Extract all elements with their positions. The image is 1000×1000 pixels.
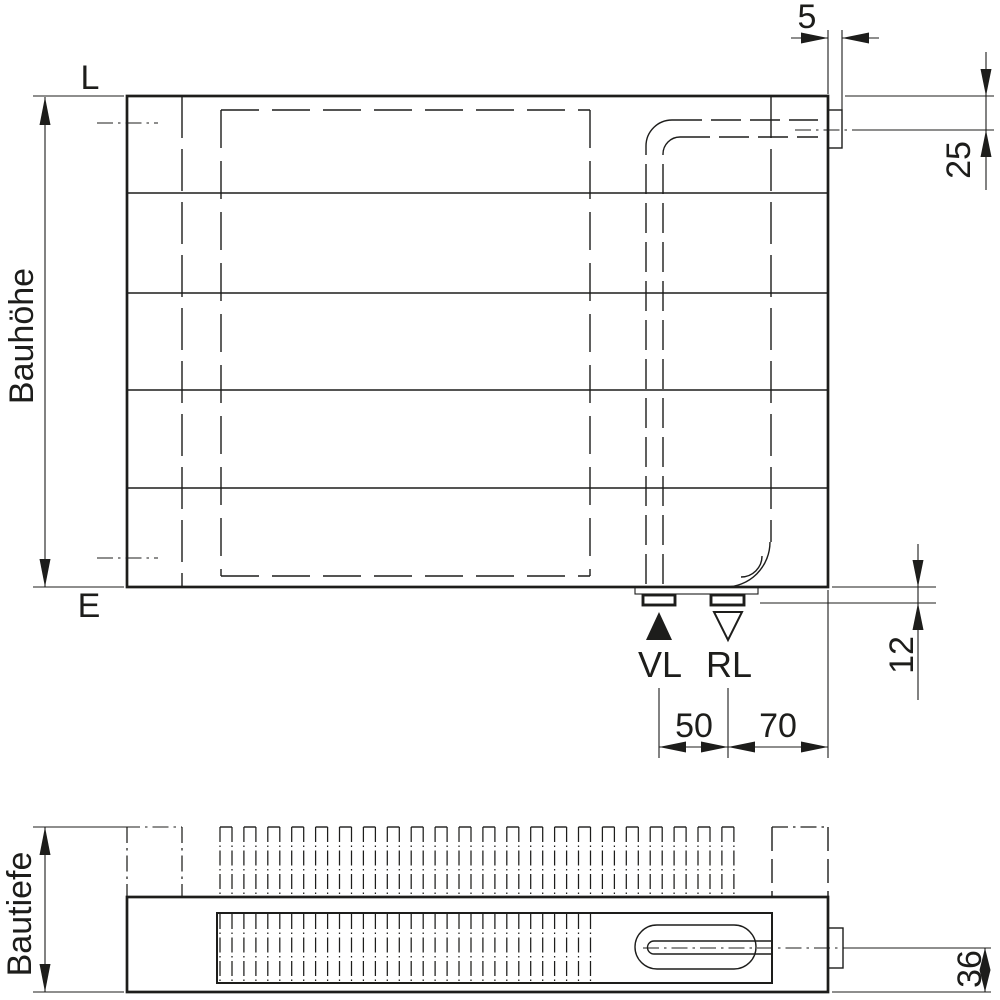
arrowhead-down-icon [40,559,51,587]
dim-pipe-center: 36 [832,948,991,992]
radiator-body [97,96,828,587]
bottom-connections: VL RL [635,587,758,685]
dim-valve-offset-value: 25 [940,141,978,179]
inner-fin-lines [220,914,591,982]
dim-stub-height: 12 [760,544,936,700]
dim-tab-width-value: 5 [798,0,817,36]
label-supply: VL [638,644,682,685]
arrowhead-down-icon [913,560,924,587]
dim-tab-width: 5 [791,0,879,110]
dim-return-to-edge-value: 70 [759,707,797,745]
valve-tab [795,110,858,148]
arrowhead-up-icon [40,827,51,855]
valve-tab-outline [828,110,842,148]
dim-stub-height-value: 12 [883,636,921,674]
arrowhead-down-icon [981,69,992,96]
return-bend-pipe [725,542,770,587]
dim-bauhoehe: Bauhöhe [3,96,124,587]
arrowhead-up-icon [40,97,51,125]
front-view: Bauhöhe L E [3,0,994,758]
label-return: RL [706,644,752,685]
arrowhead-right-icon [801,742,828,753]
supply-stub [643,595,675,605]
radiator-dimension-drawing: Bauhöhe L E [0,0,1000,1000]
dim-valve-offset: 25 [845,52,994,190]
pipe-boss-outline [635,925,756,969]
dim-pipe-center-value: 36 [951,950,989,988]
pipe-bend [725,542,770,587]
radiator-outline [127,96,828,587]
dim-height-label: Bauhöhe [3,268,41,404]
pipe-bend [663,137,680,154]
arrowhead-up-icon [913,603,924,630]
supply-riser-pipe [646,120,818,584]
dim-supply-to-return-value: 50 [675,707,713,745]
arrowhead-up-icon [981,130,992,157]
convector-fins [220,827,734,897]
dim-bautiefe: Bautiefe [1,827,182,992]
supply-flow-arrow-icon [646,612,672,640]
technical-drawing: Bauhöhe L E [0,0,1000,1000]
pipe-bend [741,556,762,577]
arrowhead-left-icon [842,33,869,44]
arrowhead-left-icon [728,742,755,753]
arrowhead-down-icon [40,964,51,992]
label-top-edge: L [81,59,100,97]
top-view: Bautiefe 36 [1,827,991,992]
lateral-pipe [635,925,858,969]
return-flow-arrow-icon [714,612,742,640]
label-bottom-edge: E [78,587,101,625]
dim-depth-label: Bautiefe [1,852,39,977]
return-stub [711,595,744,605]
